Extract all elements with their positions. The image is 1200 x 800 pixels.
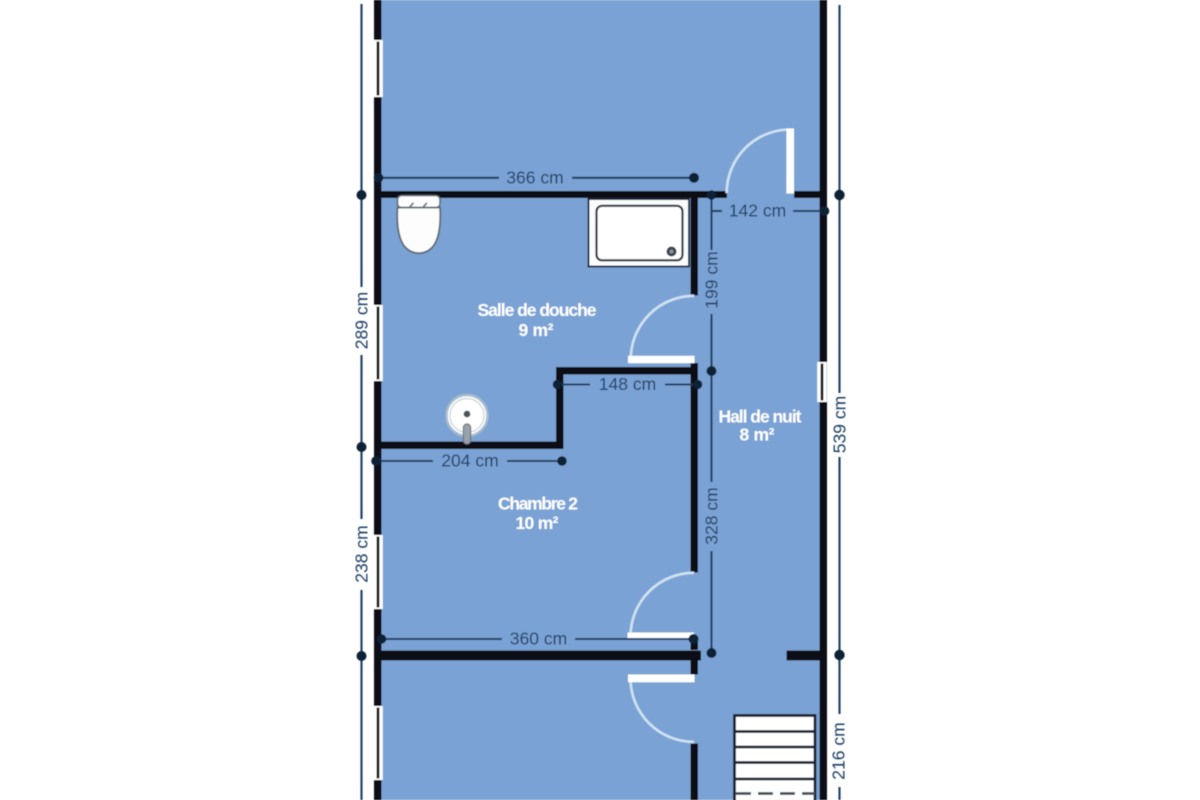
svg-text:360 cm: 360 cm <box>510 629 567 649</box>
svg-text:539 cm: 539 cm <box>830 396 850 453</box>
svg-text:10 m²: 10 m² <box>516 513 559 533</box>
svg-text:199 cm: 199 cm <box>702 251 722 308</box>
svg-text:289 cm: 289 cm <box>352 292 372 349</box>
svg-text:Salle de douche: Salle de douche <box>478 300 597 320</box>
svg-text:366 cm: 366 cm <box>506 168 563 188</box>
svg-text:148 cm: 148 cm <box>599 374 656 394</box>
svg-text:238 cm: 238 cm <box>352 525 372 582</box>
svg-text:Chambre 2: Chambre 2 <box>498 494 578 514</box>
svg-text:9 m²: 9 m² <box>519 320 554 340</box>
svg-text:142 cm: 142 cm <box>729 201 786 221</box>
svg-text:204 cm: 204 cm <box>441 451 498 471</box>
svg-text:Hall de nuit: Hall de nuit <box>719 407 802 427</box>
svg-text:216 cm: 216 cm <box>829 722 849 779</box>
svg-text:8 m²: 8 m² <box>740 425 775 445</box>
svg-text:328 cm: 328 cm <box>702 487 722 544</box>
